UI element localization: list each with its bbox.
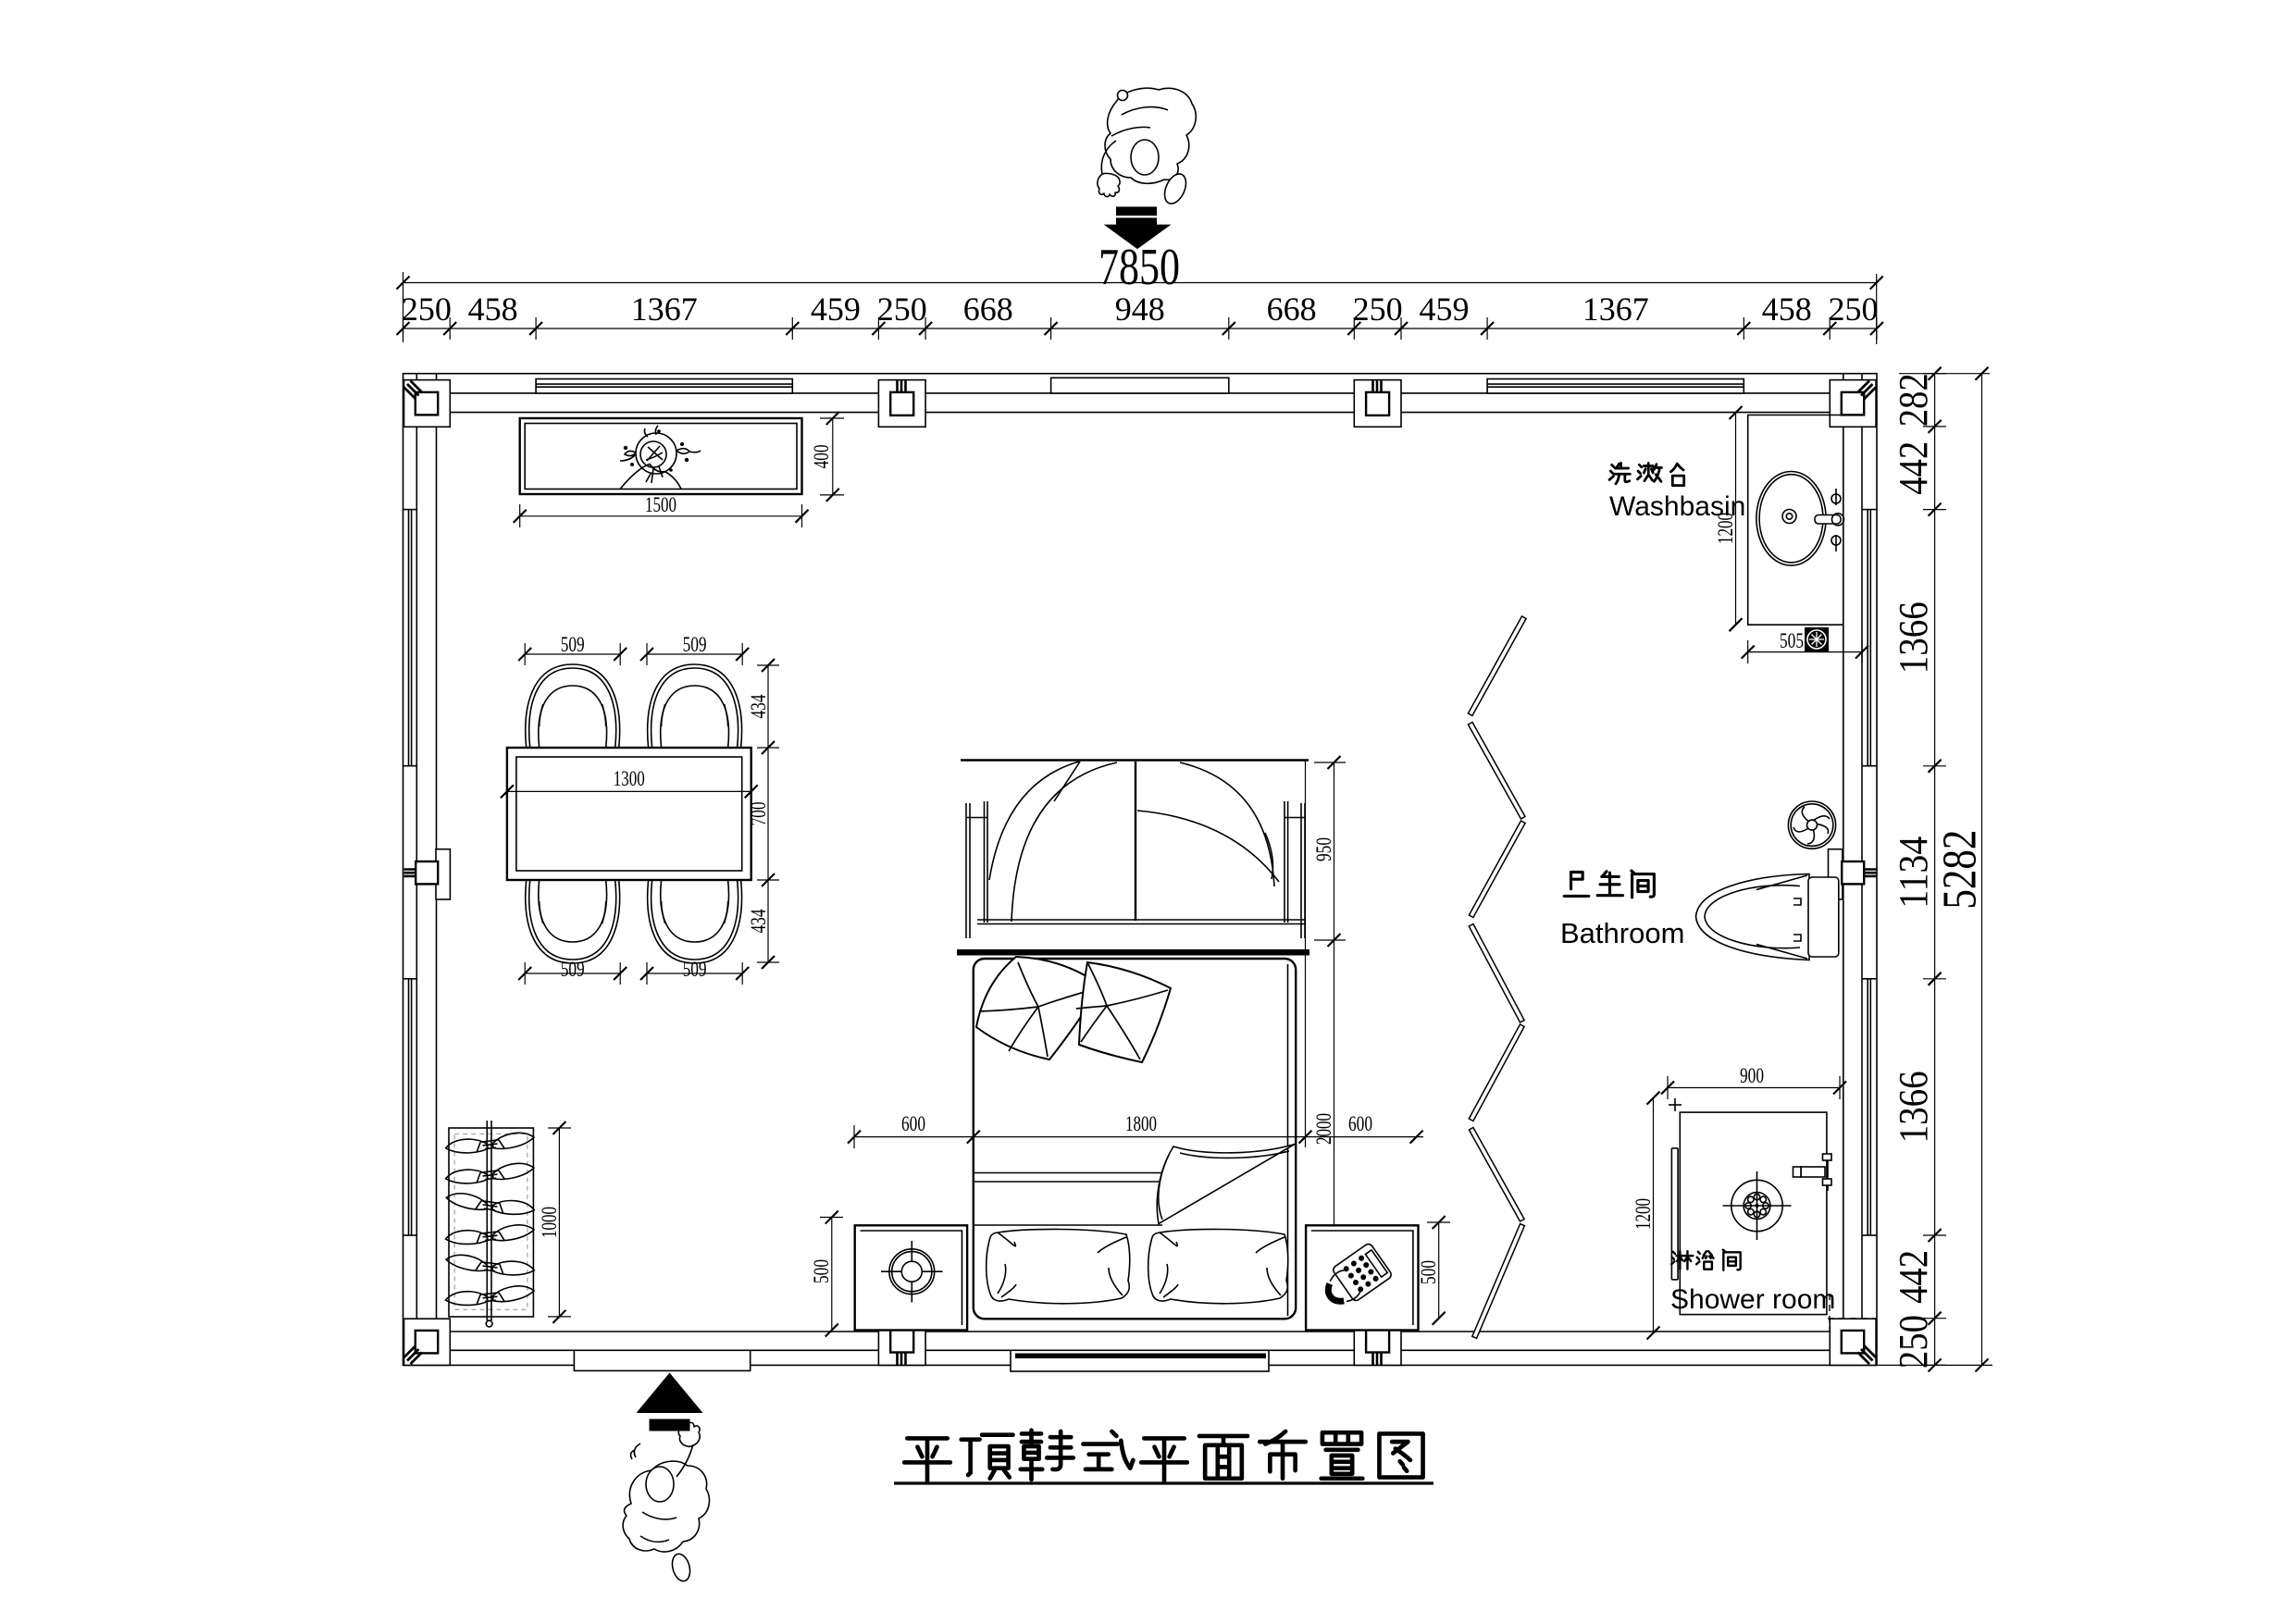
svg-text:250: 250 xyxy=(1353,291,1403,328)
svg-text:1367: 1367 xyxy=(631,291,698,328)
svg-text:5282: 5282 xyxy=(1934,830,1987,910)
svg-text:900: 900 xyxy=(1740,1064,1764,1087)
svg-text:509: 509 xyxy=(561,633,585,656)
svg-text:434: 434 xyxy=(747,909,770,933)
svg-text:600: 600 xyxy=(901,1112,925,1135)
svg-text:500: 500 xyxy=(810,1259,833,1283)
svg-text:1366: 1366 xyxy=(1891,1071,1936,1143)
svg-text:458: 458 xyxy=(468,291,518,328)
svg-text:1800: 1800 xyxy=(1125,1112,1157,1135)
svg-text:668: 668 xyxy=(1267,291,1317,328)
svg-text:2000: 2000 xyxy=(1312,1113,1335,1145)
svg-text:1000: 1000 xyxy=(538,1207,561,1238)
svg-text:500: 500 xyxy=(1417,1260,1440,1284)
svg-text:1366: 1366 xyxy=(1891,601,1936,674)
svg-text:282: 282 xyxy=(1891,373,1936,427)
svg-text:1300: 1300 xyxy=(614,767,645,790)
svg-text:458: 458 xyxy=(1762,291,1812,328)
svg-text:509: 509 xyxy=(561,958,585,981)
svg-text:509: 509 xyxy=(683,958,707,981)
svg-text:600: 600 xyxy=(1348,1112,1372,1135)
svg-text:250: 250 xyxy=(1829,291,1879,328)
svg-text:1134: 1134 xyxy=(1891,836,1936,909)
svg-text:948: 948 xyxy=(1115,291,1165,328)
svg-text:950: 950 xyxy=(1312,837,1335,861)
svg-text:1367: 1367 xyxy=(1582,291,1649,328)
svg-text:700: 700 xyxy=(747,802,770,826)
svg-text:459: 459 xyxy=(811,291,861,328)
svg-text:1200: 1200 xyxy=(1632,1198,1655,1230)
svg-text:400: 400 xyxy=(810,445,833,469)
svg-text:459: 459 xyxy=(1420,291,1470,328)
svg-text:250: 250 xyxy=(877,291,927,328)
svg-text:509: 509 xyxy=(683,633,707,656)
svg-text:442: 442 xyxy=(1891,441,1936,495)
svg-text:668: 668 xyxy=(963,291,1013,328)
svg-text:442: 442 xyxy=(1891,1250,1936,1304)
svg-text:434: 434 xyxy=(747,694,770,718)
svg-text:250: 250 xyxy=(402,291,452,328)
svg-text:250: 250 xyxy=(1891,1315,1936,1369)
svg-text:Shower room: Shower room xyxy=(1670,1284,1835,1315)
svg-text:505: 505 xyxy=(1780,629,1804,652)
svg-text:1500: 1500 xyxy=(645,493,676,516)
svg-text:Washbasin: Washbasin xyxy=(1609,491,1745,522)
svg-text:Bathroom: Bathroom xyxy=(1560,917,1684,949)
